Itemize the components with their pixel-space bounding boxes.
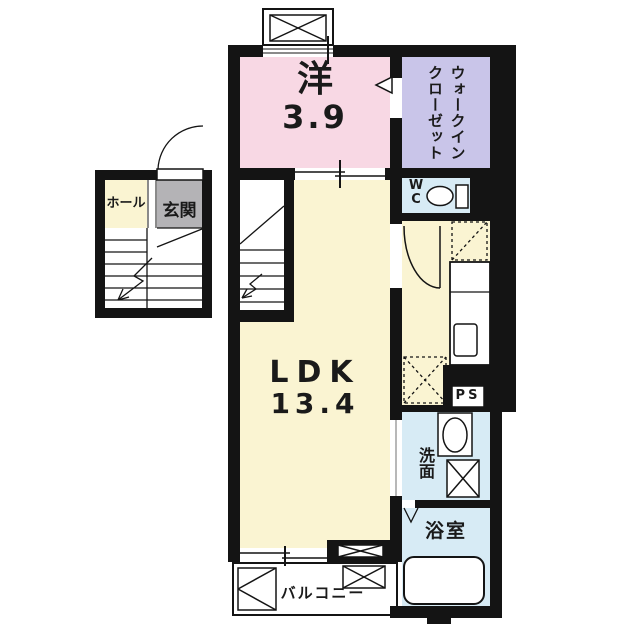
wic-line2: クローゼット	[424, 65, 447, 161]
western-room-area: 3.9	[240, 100, 390, 135]
entrance-door-icon	[157, 126, 203, 180]
wic-line1: ウォークイン	[446, 65, 469, 161]
ldk-name: LDK	[240, 356, 390, 389]
hall-label: ホール	[105, 197, 147, 211]
kitchen-corridor	[402, 221, 490, 405]
annex-stair-area	[105, 228, 202, 308]
pipe-space-label: PS	[452, 389, 484, 403]
internal-stairwell	[240, 178, 284, 313]
entrance-label: 玄関	[157, 202, 202, 221]
wc-line1: W	[404, 179, 428, 193]
balcony-label: バルコニー	[248, 585, 398, 602]
bathroom-label: 浴室	[402, 521, 490, 542]
western-room-name: 洋	[240, 60, 390, 100]
walk-in-closet-label: ウォークイン クローゼット	[402, 57, 490, 168]
ldk-area: 13.4	[240, 389, 390, 420]
western-room-label: 洋 3.9	[240, 60, 390, 135]
hall-doorway	[148, 180, 156, 228]
ldk-label: LDK 13.4	[240, 356, 390, 420]
window-icon	[263, 9, 333, 64]
floor-plan: 洋 3.9 ウォークイン クローゼット W C LDK 13.4 洗面 浴室 バ…	[0, 0, 631, 640]
wc-line2: C	[404, 193, 428, 207]
washroom-label: 洗面	[404, 432, 434, 494]
wc-label: W C	[404, 179, 428, 208]
